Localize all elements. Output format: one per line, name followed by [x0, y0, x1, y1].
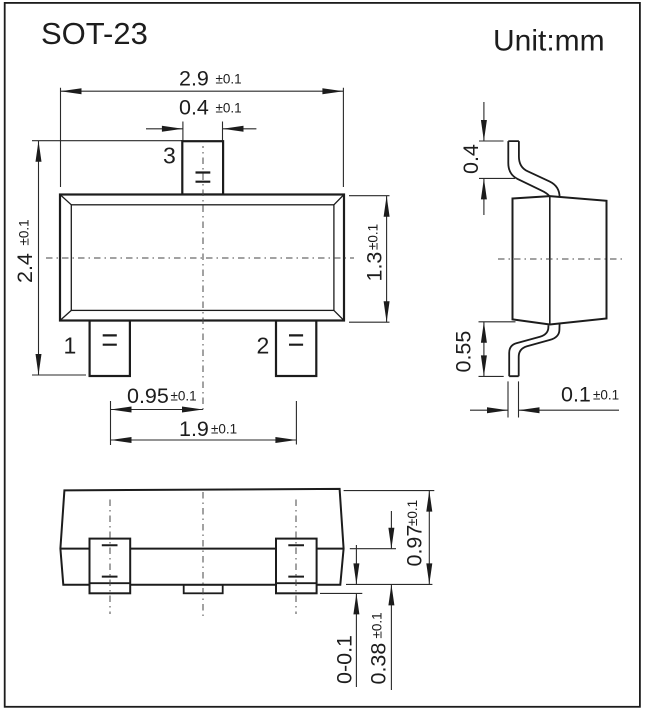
svg-text:SOT-23: SOT-23 [41, 16, 148, 51]
svg-text:1.9: 1.9 [179, 417, 209, 441]
svg-text:±0.1: ±0.1 [17, 219, 32, 245]
svg-text:±0.1: ±0.1 [370, 612, 385, 638]
svg-text:1.3: 1.3 [363, 252, 387, 282]
svg-text:2: 2 [257, 333, 270, 359]
svg-text:0.1: 0.1 [561, 383, 591, 407]
svg-text:±0.1: ±0.1 [216, 72, 242, 87]
svg-text:±0.1: ±0.1 [216, 101, 242, 116]
svg-text:2.4: 2.4 [13, 253, 37, 283]
svg-text:0.4: 0.4 [179, 96, 209, 120]
svg-text:±0.1: ±0.1 [171, 389, 197, 404]
svg-text:0.97: 0.97 [403, 525, 427, 567]
svg-text:3: 3 [163, 143, 176, 169]
svg-text:±0.1: ±0.1 [366, 224, 381, 250]
svg-text:±0.1: ±0.1 [593, 388, 619, 403]
svg-text:±0.1: ±0.1 [211, 422, 237, 437]
svg-text:1: 1 [64, 333, 77, 359]
svg-text:±0.1: ±0.1 [405, 500, 420, 526]
svg-text:2.9: 2.9 [179, 67, 209, 91]
svg-text:0.38: 0.38 [367, 643, 391, 685]
svg-text:0-0.1: 0-0.1 [333, 635, 357, 684]
svg-text:0.4: 0.4 [459, 144, 483, 174]
svg-text:0.55: 0.55 [452, 331, 476, 373]
svg-text:0.95: 0.95 [127, 384, 169, 408]
svg-text:Unit:mm: Unit:mm [493, 25, 605, 58]
